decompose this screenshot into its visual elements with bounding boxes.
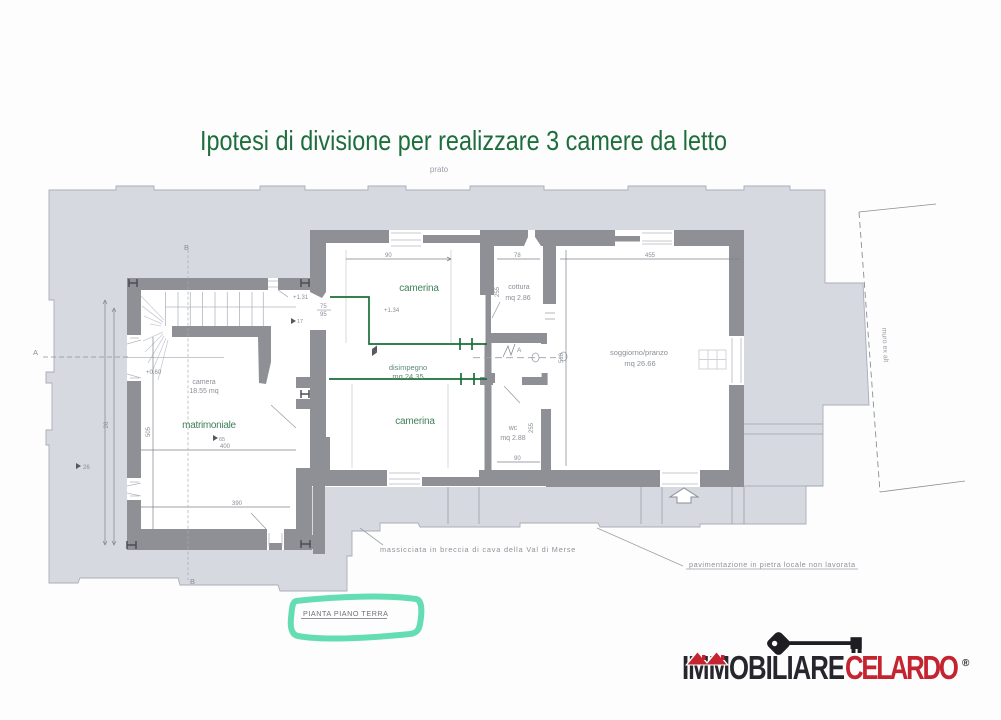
svg-text:+0.60: +0.60 (146, 370, 162, 376)
svg-text:PIANTA PIANO TERRA: PIANTA PIANO TERRA (303, 609, 389, 618)
svg-text:A: A (33, 348, 38, 357)
svg-text:95: 95 (320, 312, 327, 318)
svg-text:mq 24.35: mq 24.35 (392, 372, 423, 381)
svg-text:505: 505 (146, 426, 152, 437)
svg-text:255: 255 (529, 422, 535, 433)
svg-text:90: 90 (514, 456, 521, 462)
svg-text:camerina: camerina (399, 283, 439, 294)
svg-text:wc: wc (508, 425, 518, 432)
svg-text:mq 2.86: mq 2.86 (505, 295, 530, 302)
svg-text:90: 90 (385, 253, 392, 259)
svg-text:75: 75 (320, 304, 327, 310)
svg-text:cottura: cottura (508, 284, 530, 291)
svg-text:camerina: camerina (395, 416, 435, 427)
svg-text:26: 26 (83, 465, 90, 471)
svg-text:+1.31: +1.31 (293, 295, 309, 301)
svg-text:soggiorno/pranzo: soggiorno/pranzo (610, 348, 668, 357)
svg-text:matrimoniale: matrimoniale (182, 420, 236, 431)
svg-text:IMMOBILIARE: IMMOBILIARE (682, 650, 845, 687)
svg-text:390: 390 (232, 501, 243, 507)
svg-text:78: 78 (514, 253, 521, 259)
svg-text:massicciata in breccia di cava: massicciata in breccia di cava della Val… (380, 545, 576, 554)
svg-text:®: ® (962, 658, 970, 669)
svg-text:510: 510 (559, 352, 565, 363)
svg-text:400: 400 (220, 444, 231, 450)
svg-text:mq 2.88: mq 2.88 (500, 435, 525, 442)
svg-text:CELARDO: CELARDO (845, 650, 959, 687)
svg-text:18.55 mq: 18.55 mq (189, 388, 218, 395)
svg-text:455: 455 (645, 253, 656, 259)
svg-text:mq 26.66: mq 26.66 (624, 359, 655, 368)
svg-text:disimpegno: disimpegno (389, 363, 427, 372)
svg-text:255: 255 (495, 286, 501, 297)
svg-text:65: 65 (219, 437, 225, 443)
svg-text:B: B (190, 577, 195, 586)
svg-text:prato: prato (430, 165, 449, 174)
svg-text:Ipotesi di divisione per reali: Ipotesi di divisione per realizzare 3 ca… (200, 125, 727, 156)
svg-text:A: A (517, 347, 522, 354)
svg-text:camera: camera (192, 379, 215, 386)
svg-text:17: 17 (297, 319, 303, 325)
svg-text:pavimentazione in pietra local: pavimentazione in pietra locale non lavo… (689, 560, 856, 569)
svg-text:26: 26 (104, 421, 110, 428)
svg-text:B: B (184, 243, 189, 252)
svg-text:+1.34: +1.34 (384, 308, 400, 314)
